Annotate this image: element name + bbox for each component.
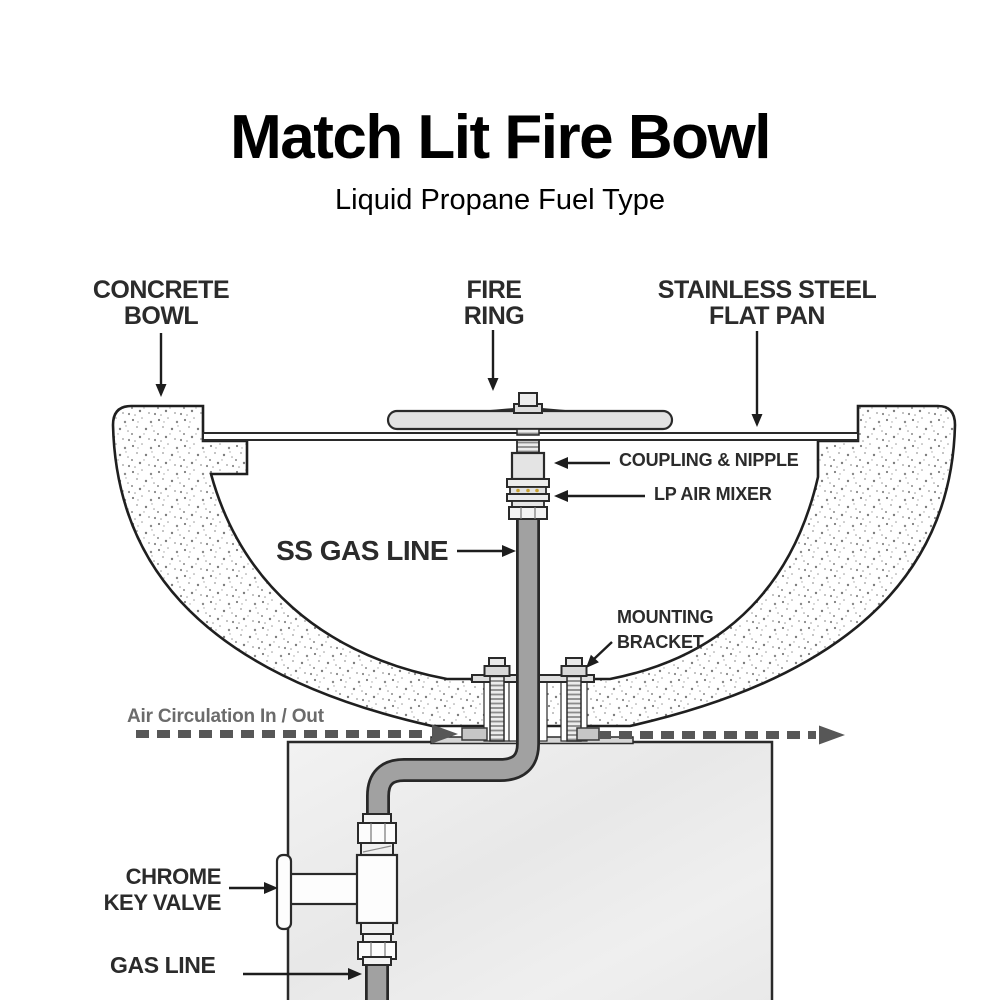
- page-subtitle: Liquid Propane Fuel Type: [0, 184, 1000, 217]
- coupling-nipple-arrow: [554, 457, 610, 469]
- label-gas-line: GAS LINE: [110, 952, 215, 979]
- label-fire-ring-line2: RING: [369, 303, 619, 329]
- label-stainless-flat-pan-line1: STAINLESS STEEL: [642, 277, 892, 303]
- label-stainless-flat-pan: STAINLESS STEEL FLAT PAN: [642, 277, 892, 329]
- label-stainless-flat-pan-line2: FLAT PAN: [642, 303, 892, 329]
- label-concrete-bowl-line1: CONCRETE: [36, 277, 286, 303]
- label-ss-gas-line: SS GAS LINE: [198, 535, 448, 567]
- lp-air-mixer: [507, 479, 549, 519]
- coupling: [512, 453, 544, 479]
- fire-bowl-diagram-page: Match Lit Fire Bowl Liquid Propane Fuel …: [0, 0, 1000, 1000]
- mounting-bracket-arrow: [586, 642, 612, 668]
- label-concrete-bowl-line2: BOWL: [36, 303, 286, 329]
- label-chrome-key-valve-line1: CHROME: [41, 864, 221, 890]
- valve-body: [357, 855, 397, 923]
- label-chrome-key-valve-line2: KEY VALVE: [41, 890, 221, 916]
- burner-stack: [507, 440, 549, 519]
- chrome-key-valve-arrow: [229, 882, 278, 894]
- ss-gas-line-arrow: [457, 545, 516, 557]
- label-air-circulation: Air Circulation In / Out: [127, 706, 324, 728]
- page-title: Match Lit Fire Bowl: [0, 102, 1000, 173]
- label-chrome-key-valve: CHROME KEY VALVE: [41, 864, 221, 916]
- flat-pan-arrow: [752, 331, 763, 427]
- label-lp-air-mixer: LP AIR MIXER: [654, 484, 772, 505]
- spacer-left: [462, 728, 487, 740]
- fire-ring-arrow: [488, 330, 499, 391]
- label-mounting-bracket-line1: MOUNTING: [617, 605, 713, 630]
- label-coupling-nipple: COUPLING & NIPPLE: [619, 450, 799, 471]
- valve-stem-pipe: [289, 874, 359, 904]
- label-mounting-bracket: MOUNTING BRACKET: [617, 605, 713, 655]
- spacer-right: [577, 728, 599, 740]
- fire-ring-hub: [519, 393, 537, 406]
- nipple-threads: [517, 440, 539, 453]
- lp-air-mixer-arrow: [554, 490, 645, 502]
- valve-wall-flange: [277, 855, 291, 929]
- label-fire-ring-line1: FIRE: [369, 277, 619, 303]
- label-concrete-bowl: CONCRETE BOWL: [36, 277, 286, 329]
- label-fire-ring: FIRE RING: [369, 277, 619, 329]
- label-mounting-bracket-line2: BRACKET: [617, 630, 713, 655]
- concrete-bowl-arrow: [156, 333, 167, 397]
- fire-ring-shape: [388, 393, 672, 435]
